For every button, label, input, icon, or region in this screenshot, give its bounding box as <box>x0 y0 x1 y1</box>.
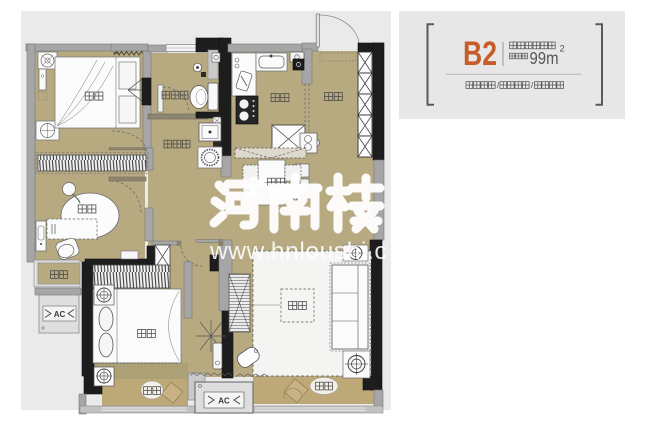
svg-text:AC: AC <box>218 397 230 406</box>
svg-text:B2: B2 <box>463 35 497 73</box>
svg-text:AC: AC <box>54 310 66 319</box>
svg-text:www.hnloushi.c: www.hnloushi.c <box>209 238 387 265</box>
svg-text:2: 2 <box>560 44 565 55</box>
svg-text:99m: 99m <box>530 48 559 68</box>
